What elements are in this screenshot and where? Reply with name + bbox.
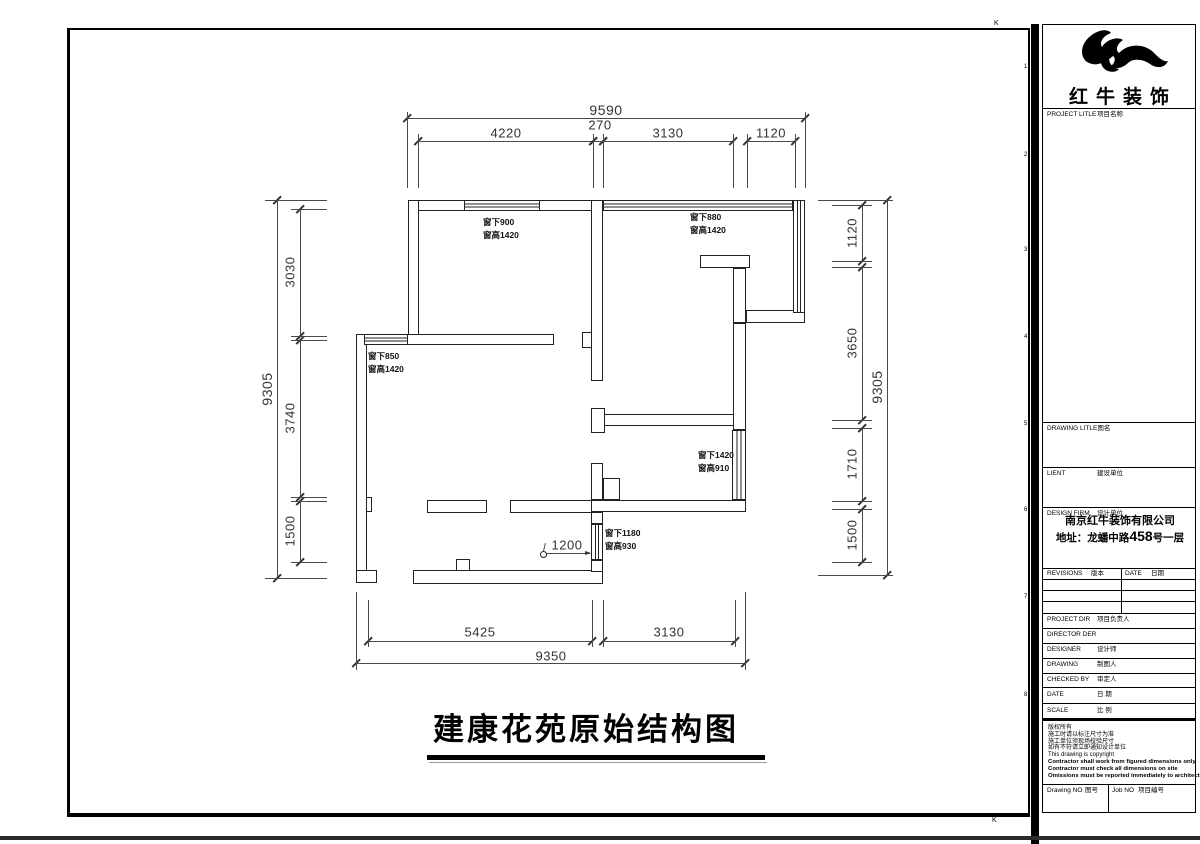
project-title-label: PROJECT LITLE项目名称	[1047, 111, 1123, 119]
sheet-divider	[1031, 24, 1039, 844]
wall	[356, 570, 377, 583]
dimension-label: 9350	[536, 649, 567, 664]
grid-ref-number: 8	[1024, 692, 1027, 698]
window	[603, 200, 793, 211]
grid-ref-number: 3	[1024, 247, 1027, 253]
dimension-line	[300, 209, 301, 336]
brand-logo-icon	[1073, 28, 1169, 78]
grid-ref-number: 4	[1024, 334, 1027, 340]
dimension-label: 9590	[589, 102, 622, 118]
dimension-label: 270	[588, 118, 611, 133]
extension-line	[795, 134, 796, 188]
extension-line	[745, 592, 746, 670]
title-underline-thin	[429, 762, 767, 763]
director-label: DIRECTOR DER	[1047, 631, 1097, 639]
extension-line	[291, 562, 327, 563]
window	[464, 200, 540, 211]
wall	[700, 255, 750, 268]
dimension-line	[300, 340, 301, 497]
revisions-label: REVISIONS版本	[1047, 570, 1104, 578]
dimension-line	[300, 501, 301, 562]
dimension-label: 3130	[654, 625, 685, 640]
copyright-line: Contractor shall work from figured dimen…	[1048, 759, 1194, 765]
dimension-line	[368, 641, 592, 642]
drawing-label: DRAWING制图人	[1047, 661, 1117, 669]
grid-ref-number: 2	[1024, 152, 1027, 158]
dimension-line	[862, 205, 863, 261]
dimension-label: 5425	[465, 625, 496, 640]
wall	[356, 334, 367, 574]
extension-line	[832, 509, 872, 510]
dimension-line	[277, 200, 278, 578]
dimension-label: 1120	[845, 218, 860, 248]
extension-line	[603, 600, 604, 647]
copyright-line: Omissions must be reported immediately t…	[1048, 773, 1194, 779]
project-dir-label: PROJECT DIR项目负责人	[1047, 616, 1130, 624]
wall	[427, 500, 487, 513]
extension-line	[265, 578, 327, 579]
brand-name: 红牛装饰	[1043, 82, 1195, 109]
window	[364, 334, 408, 345]
wall	[591, 200, 603, 381]
dimension-line	[862, 428, 863, 501]
dimension-label: 1200	[552, 538, 583, 553]
wall	[603, 478, 620, 500]
design-firm-info: 南京红牛装饰有限公司 地址：龙蟠中路458号一层	[1050, 515, 1190, 545]
extension-line	[291, 336, 327, 337]
extension-line	[735, 600, 736, 647]
wall	[366, 497, 372, 512]
dimension-label: 9305	[259, 372, 275, 405]
extension-line	[291, 340, 327, 341]
dimension-line	[862, 267, 863, 420]
wall	[510, 500, 592, 513]
dimension-label: 1710	[845, 449, 860, 480]
extension-line	[291, 209, 327, 210]
dimension-label: 3030	[283, 257, 298, 288]
copyright-line: 施工时请以标注尺寸为准	[1048, 732, 1194, 739]
job-no-label: Job NO项目编号	[1112, 787, 1164, 795]
extension-line	[832, 562, 872, 563]
extension-line	[818, 200, 893, 201]
drawing-no-label: Drawing NO图号	[1047, 787, 1098, 795]
extension-line	[832, 428, 872, 429]
extension-line	[592, 600, 593, 647]
wall	[591, 500, 746, 512]
dimension-label: 1500	[283, 516, 298, 547]
extension-line	[733, 134, 734, 188]
extension-line	[291, 501, 327, 502]
dimension-line	[862, 509, 863, 562]
extension-line	[418, 134, 419, 188]
copyright-notes: 版权所有施工时请以标注尺寸为准施工单位须现场校验尺寸如有不符请立即通知设计单位T…	[1048, 725, 1194, 779]
dimension-line	[603, 141, 733, 142]
extension-line	[407, 112, 408, 188]
date-label: DATE日 期	[1047, 691, 1112, 699]
grid-ref-top: K	[994, 20, 999, 27]
wall	[591, 463, 603, 500]
window-annotation: 窗下1420 窗高910	[698, 449, 734, 474]
dimension-line	[418, 141, 593, 142]
wall	[591, 560, 603, 572]
window-annotation: 窗下1180 窗高930	[605, 527, 640, 552]
dimension-line	[887, 200, 888, 575]
dimension-arrow	[585, 551, 591, 555]
extension-line	[291, 497, 327, 498]
extension-line	[593, 134, 594, 188]
grid-ref-number: 1	[1024, 64, 1027, 70]
extension-line	[832, 261, 872, 262]
dimension-label: 3130	[653, 126, 684, 141]
wall	[406, 334, 554, 345]
drawing-border	[67, 28, 1030, 817]
grid-ref-number: 7	[1024, 594, 1027, 600]
copyright-line: This drawing is copyright	[1048, 752, 1194, 759]
dimension-label: 9305	[869, 370, 885, 403]
dimension-label: 1120	[756, 126, 786, 141]
extension-line	[368, 600, 369, 647]
checked-by-label: CHECKED BY审定人	[1047, 676, 1117, 684]
extension-line	[832, 501, 872, 502]
window-annotation: 窗下900 窗高1420	[483, 216, 519, 241]
copyright-line: 如有不符请立即通知设计单位	[1048, 745, 1194, 752]
sheet-bottom-edge	[0, 836, 1200, 840]
wall	[456, 559, 470, 571]
window-annotation: 窗下850 窗高1420	[368, 350, 404, 375]
title-underline	[427, 755, 765, 760]
extension-line	[747, 134, 748, 188]
grid-ref-number: 5	[1024, 421, 1027, 427]
grid-ref-bottom: K	[992, 817, 997, 824]
window-annotation: 窗下880 窗高1420	[690, 211, 726, 236]
wall	[591, 408, 605, 433]
wall	[408, 200, 419, 345]
dimension-line	[747, 141, 795, 142]
firm-address: 地址：龙蟠中路458号一层	[1050, 530, 1190, 545]
window	[732, 430, 746, 500]
extension-line	[832, 420, 872, 421]
extension-line	[832, 205, 872, 206]
copyright-line: 版权所有	[1048, 725, 1194, 732]
title-block: 红牛装饰 PROJECT LITLE项目名称 DRAWING LITLE图名 L…	[1042, 24, 1196, 813]
extension-line	[265, 200, 327, 201]
designer-label: DESIGNER设计师	[1047, 646, 1117, 654]
extension-line	[805, 112, 806, 188]
extension-line	[356, 592, 357, 670]
extension-line	[818, 575, 893, 576]
window	[793, 200, 805, 313]
firm-name: 南京红牛装饰有限公司	[1050, 515, 1190, 528]
copyright-line: Contractor must check all dimensions on …	[1048, 766, 1194, 772]
wall	[733, 323, 746, 430]
drawing-title-label: DRAWING LITLE图名	[1047, 425, 1110, 433]
wall	[733, 268, 746, 323]
dimension-line	[603, 641, 735, 642]
scale-label: SCALE比 例	[1047, 707, 1112, 715]
wall	[591, 512, 603, 524]
revisions-date-label: DATE日期	[1125, 570, 1164, 578]
dimension-label: 3650	[845, 328, 860, 359]
wall	[582, 332, 592, 348]
dimension-label: 3740	[283, 403, 298, 434]
dimension-origin-marker	[540, 551, 547, 558]
client-label: LIENT建设单位	[1047, 470, 1123, 478]
wall	[413, 570, 603, 584]
drawing-title: 建康花苑原始结构图	[400, 704, 772, 749]
window	[591, 524, 603, 560]
extension-line	[832, 267, 872, 268]
dimension-label: 4220	[491, 126, 522, 141]
dimension-label: 1500	[845, 520, 860, 551]
wall	[591, 414, 746, 426]
grid-ref-number: 6	[1024, 507, 1027, 513]
interior-dimension-line	[546, 553, 590, 554]
extension-line	[603, 134, 604, 188]
